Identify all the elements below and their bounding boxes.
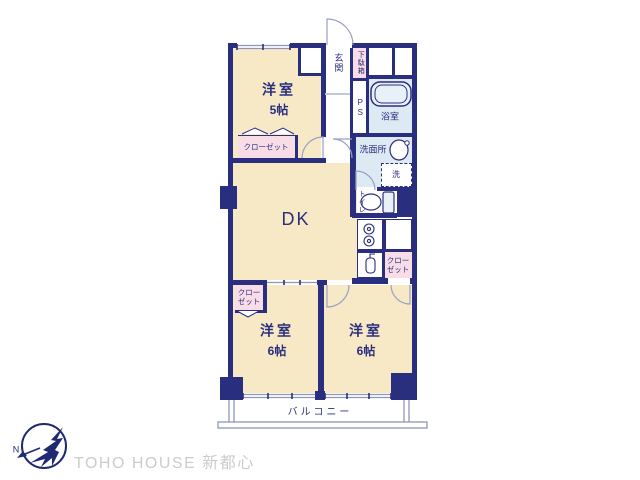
label-closet-kitchen: クロー ゼット [387,256,410,274]
label-bathroom: 浴室 [381,112,399,123]
wall [321,43,326,137]
floorplan-page: 洋室 5帖 DK 洋室 6帖 洋室 6帖 玄関 下駄箱 PS 浴室 洗面所 洗 … [0,0,640,480]
label-dk: DK [281,209,310,231]
wall [410,278,417,284]
watermark-text: TOHO HOUSE 新都心 [74,449,255,473]
label-closet-bedroom5: クローゼット [244,143,289,152]
label-west5-size: 5帖 [270,103,289,117]
stove-counter [357,219,383,250]
wall [235,310,267,313]
label-washroom: 洗面所 [359,145,386,156]
wall [366,75,412,79]
bathroom-floor [369,79,412,133]
wall [318,285,324,391]
wall [228,43,233,400]
label-toilet: トイレ [357,190,365,214]
wall [352,133,412,137]
alcove-block [300,45,322,73]
label-entrance: 玄関 [333,53,344,73]
label-west6-right-name: 洋室 [349,323,383,340]
wall [295,135,298,161]
label-closet-bedroom6: クロー ゼット [238,288,261,306]
label-west6-left-name: 洋室 [260,323,294,340]
wall [263,285,267,312]
pillar [220,186,237,209]
wall [298,73,324,76]
pillar [220,377,243,400]
wall [366,48,369,133]
wall [315,391,325,400]
wall [350,48,353,78]
entrance-step [325,93,350,95]
kitchen-sink [357,252,383,278]
wall [352,278,388,284]
label-laundry: 洗 [392,170,400,180]
label-pipe-space: PS [355,98,365,118]
entrance-door [327,19,353,45]
wall [377,187,397,191]
wall [352,43,412,48]
wall [412,43,417,400]
label-west5-name: 洋室 [262,82,296,99]
north-arrow [20,448,40,456]
wall [228,280,267,285]
toilet-tank [383,192,394,213]
wall [350,133,356,217]
wall [298,45,301,76]
kitchen-cabinet [385,219,412,250]
pillar [391,373,416,400]
wall [228,158,326,163]
logo-north-label: N [13,445,20,456]
wall [350,81,353,133]
label-shoe-cabinet: 下駄箱 [356,51,364,75]
label-west6-left-size: 6帖 [268,344,287,358]
wall [290,43,325,48]
bird-icon [30,427,63,467]
pillar [397,187,417,217]
wall [392,48,395,75]
label-west6-right-size: 6帖 [357,344,376,358]
logo-mark [17,424,66,468]
label-balcony: バルコニー [288,407,353,419]
